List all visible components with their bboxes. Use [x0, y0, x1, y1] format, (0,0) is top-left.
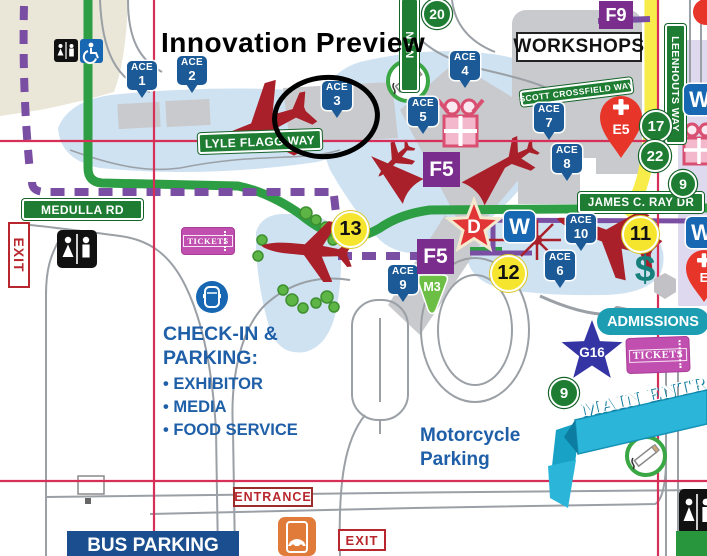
marker-9-south: 9 — [549, 378, 579, 408]
ace-pin-label: ACE — [388, 267, 418, 277]
exit-sign-south: EXIT — [338, 529, 386, 551]
d-star-label: D — [462, 217, 486, 239]
ace-pin-number: 6 — [545, 264, 575, 277]
zone-f5: F5 — [423, 152, 460, 187]
water-station: W — [684, 84, 707, 115]
tickets-icon: TICKETS — [181, 227, 235, 255]
gift-icon — [684, 124, 707, 164]
road-sign-medulla: MEDULLA RD — [22, 199, 143, 220]
restroom-icon — [679, 489, 707, 535]
m3-marker-label: M3 — [417, 280, 447, 294]
first-aid-label-partial: E — [696, 270, 707, 285]
checkin-parking-note: CHECK-IN & PARKING: • EXHIBITOR • MEDIA … — [163, 322, 298, 442]
bus-parking-label: BUS PARKING — [67, 531, 239, 556]
checkin-line1: CHECK-IN & — [163, 322, 298, 346]
ace-pin-number: 4 — [450, 64, 480, 77]
ace-pin-6: ACE6 — [545, 251, 575, 280]
ace-pin-8: ACE8 — [552, 144, 582, 173]
ace-pin-label: ACE — [566, 216, 596, 226]
ace-pin-10: ACE10 — [566, 214, 596, 243]
tickets-icon: TICKETS — [625, 336, 690, 374]
ace-pin-number: 2 — [177, 69, 207, 82]
ace-pin-label: ACE — [450, 53, 480, 63]
marker-20: 20 — [422, 0, 452, 29]
marker-9-north: 9 — [669, 170, 697, 198]
ace-pin-7: ACE7 — [534, 103, 564, 132]
restroom-icon — [57, 230, 97, 268]
ticket-perforation — [224, 231, 226, 251]
event-map: Innovation Preview LYLE FLAGG WAY MEDULL… — [0, 0, 707, 556]
rideshare-icon — [278, 517, 316, 556]
g16-star-label: G16 — [574, 345, 610, 360]
marker-17: 17 — [640, 110, 672, 142]
admissions-label: ADMISSIONS — [597, 308, 707, 335]
ace-pin-label: ACE — [545, 253, 575, 263]
water-station: W — [504, 211, 535, 242]
ace-pin-number: 8 — [552, 157, 582, 170]
parking-shuttle-icon — [196, 281, 228, 313]
ace-pin-number: 1 — [127, 74, 157, 87]
checkin-item-food-service: • FOOD SERVICE — [163, 419, 298, 442]
page-title: Innovation Preview — [161, 27, 425, 59]
green-block — [676, 531, 707, 556]
ace-pin-number: 10 — [566, 227, 596, 240]
red-pin-partial — [693, 0, 707, 25]
marker-12: 12 — [490, 255, 527, 292]
first-aid-label: E5 — [606, 121, 636, 137]
marker-13: 13 — [332, 211, 369, 248]
zone-f5b: F5 — [417, 239, 454, 274]
motorcycle-line2: Parking — [420, 448, 520, 472]
ace-pin-2: ACE2 — [177, 56, 207, 85]
wheelchair-accessible-icon — [80, 39, 103, 63]
marker-22: 22 — [639, 140, 671, 172]
ace-pin-label: ACE — [552, 146, 582, 156]
motorcycle-parking-label: Motorcycle Parking — [420, 424, 520, 472]
ace-pin-number: 9 — [388, 278, 418, 291]
ace-pin-number: 7 — [534, 116, 564, 129]
ace-pin-number: 5 — [408, 110, 438, 123]
exit-sign-west: EXIT — [8, 222, 30, 288]
workshops-label: WORKSHOPS — [516, 32, 642, 62]
ace-pin-4: ACE4 — [450, 51, 480, 80]
ace-pin-1: ACE1 — [127, 61, 157, 90]
zone-f9: F9 — [599, 1, 633, 29]
ace-pin-9: ACE9 — [388, 265, 418, 294]
checkin-line2: PARKING: — [163, 346, 298, 370]
ace-pin-5: ACE5 — [408, 97, 438, 126]
entrance-sign: ENTRANCE — [233, 487, 313, 507]
ace-pin-label: ACE — [177, 58, 207, 68]
smoking-area-icon — [627, 437, 665, 475]
ace-pin-label: ACE — [127, 63, 157, 73]
ace-pin-label: ACE — [408, 99, 438, 109]
ace-pin-label: ACE — [534, 105, 564, 115]
water-station: W — [686, 217, 707, 248]
checkin-item-media: • MEDIA — [163, 396, 298, 419]
restroom-icon — [54, 39, 78, 62]
checkin-item-exhibitor: • EXHIBITOR — [163, 373, 298, 396]
motorcycle-line1: Motorcycle — [420, 424, 520, 448]
ticket-perforation — [678, 340, 681, 368]
atm-dollar-label: $ — [629, 248, 661, 290]
